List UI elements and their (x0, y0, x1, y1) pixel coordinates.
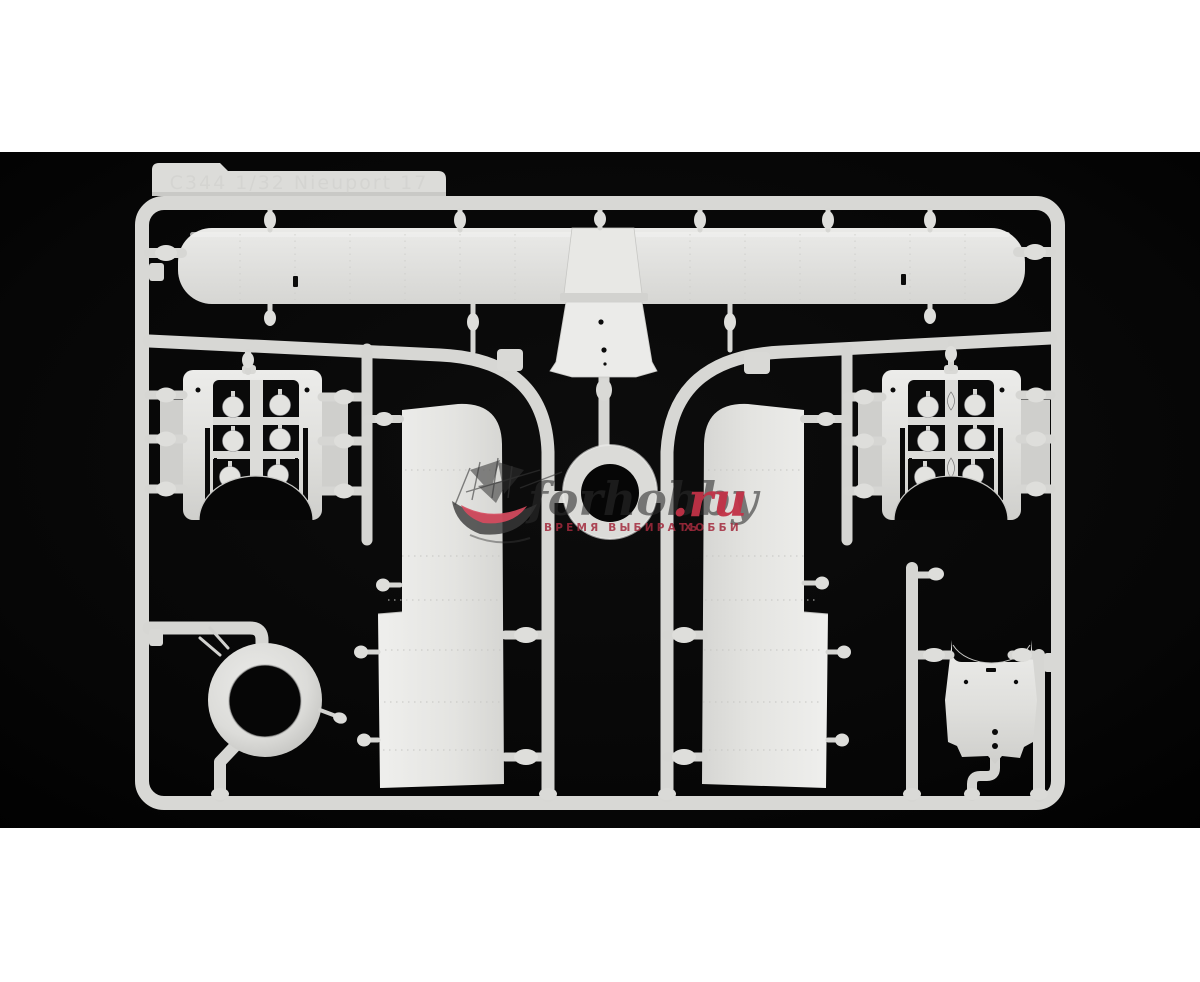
frame-tab-left-lower (149, 629, 163, 646)
fuselage-decking (550, 302, 657, 377)
watermark-site-tld: .ru (672, 473, 747, 528)
part-number-tag-right (744, 352, 770, 374)
sprue-label-text: C344 1/32 Nieuport 17 (170, 172, 429, 194)
watermark-tagline-right: ХОББИ (684, 522, 742, 534)
letterbox-top (0, 0, 1200, 152)
photo-stage: C344 1/32 Nieuport 17 (0, 0, 1200, 982)
wing-center-section (560, 228, 648, 301)
letterbox-bottom (0, 828, 1200, 982)
part-number-tag-left (497, 349, 523, 371)
frame-tab-left-upper (149, 263, 164, 281)
watermark-tagline-left: ВРЕМЯ ВЫБИРАТЬ (544, 522, 701, 534)
sprue-photo: C344 1/32 Nieuport 17 (0, 0, 1200, 982)
wing-slot-left (293, 276, 298, 287)
frame-tab-right (1044, 653, 1058, 672)
wing-slot-right (901, 274, 906, 285)
